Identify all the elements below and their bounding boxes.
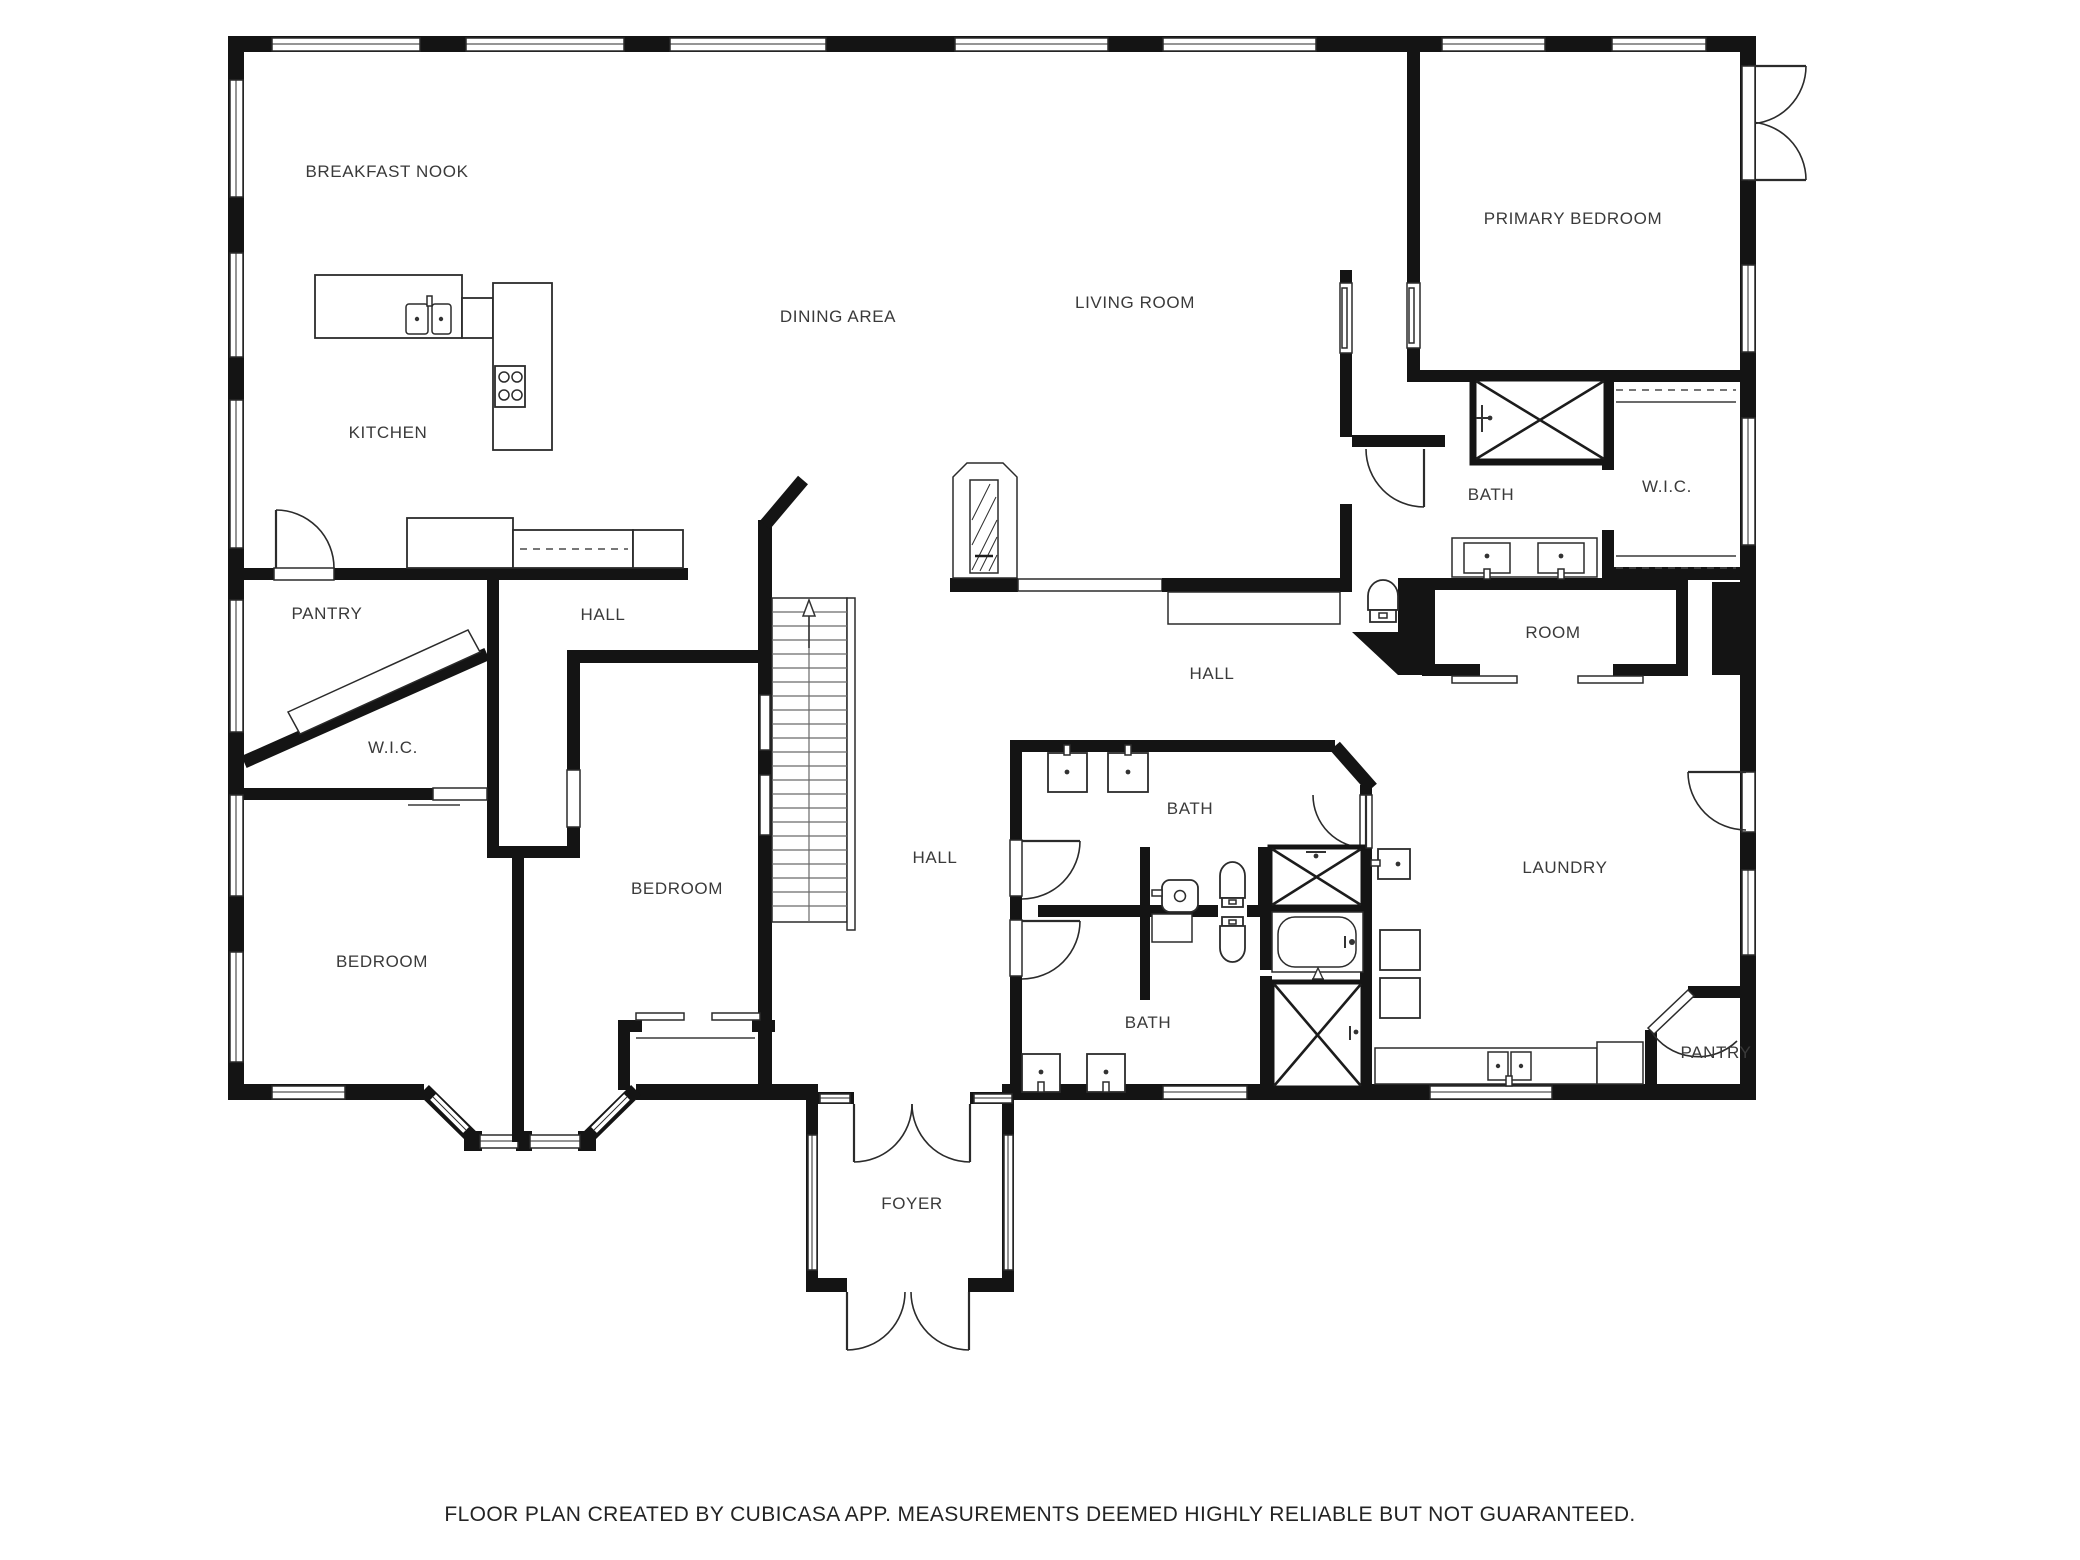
toilet-primary-icon (1368, 580, 1398, 622)
pass-through-counter (1018, 579, 1162, 591)
dryer-icon (1380, 978, 1420, 1018)
label-hall-left: HALL (581, 605, 626, 624)
floor-plan-canvas: BREAKFAST NOOK KITCHEN DINING AREA LIVIN… (0, 0, 2080, 1560)
pantry-shelf (288, 630, 480, 734)
hall-counter (1168, 592, 1340, 624)
label-pantry-left: PANTRY (292, 604, 363, 623)
bay-window (433, 1097, 627, 1148)
floor-plan-page: BREAKFAST NOOK KITCHEN DINING AREA LIVIN… (0, 0, 2080, 1560)
label-bath-top: BATH (1167, 799, 1213, 818)
label-laundry: LAUNDRY (1522, 858, 1607, 877)
cased-opening-panel (1409, 288, 1414, 343)
kitchen-fixtures (288, 275, 683, 734)
window-left-6 (230, 952, 243, 1062)
bath-top-hall-door (1313, 795, 1366, 848)
bath-bottom-left-door (1022, 921, 1080, 979)
pantry-diagonal-wall (244, 654, 487, 762)
bathtub-icon (1272, 912, 1363, 979)
bedroom-divider-wall (512, 846, 524, 1142)
room-slider-panel (1578, 676, 1643, 683)
stove-icon (495, 366, 525, 407)
window-right-3 (1742, 870, 1755, 955)
window-bottom-laundry (1430, 1086, 1552, 1099)
label-bedroom-left: BEDROOM (336, 952, 428, 971)
laundry-wall-sink-icon (1371, 849, 1410, 879)
window-foyer-top-left (820, 1094, 850, 1103)
window-foyer-left (808, 1135, 817, 1270)
label-hall-right: HALL (1190, 664, 1235, 683)
label-bath-bottom: BATH (1125, 1013, 1171, 1032)
window-top-1 (272, 38, 420, 51)
label-living-room: LIVING ROOM (1075, 293, 1195, 312)
primary-bath-door (1366, 449, 1424, 507)
foyer-entry-doors (847, 1292, 969, 1350)
label-hall-center: HALL (913, 848, 958, 867)
vanity-sinks-top-bath (1048, 745, 1148, 792)
footer-disclaimer: FLOOR PLAN CREATED BY CUBICASA APP. MEAS… (444, 1503, 1635, 1526)
label-room: ROOM (1525, 623, 1580, 642)
window-foyer-right (1004, 1135, 1013, 1270)
label-dining-area: DINING AREA (780, 307, 896, 326)
closet-slider-panel (636, 1013, 684, 1020)
label-wic-left: W.I.C. (368, 738, 418, 757)
toilet-bottom-bath-icon (1220, 917, 1245, 962)
doors (276, 66, 1806, 1350)
wall-niche (760, 695, 770, 750)
bath-top-left-door (1022, 841, 1080, 899)
window-top-2 (466, 38, 624, 51)
window-left-1 (230, 80, 243, 197)
window-top-4 (955, 38, 1108, 51)
chimney-mass (1712, 582, 1740, 675)
kitchen-counters (407, 518, 683, 568)
window-bedroom-left-bottom (272, 1086, 345, 1099)
center-bath-fixtures (1022, 745, 1363, 1092)
window-foyer-top-right (974, 1094, 1012, 1103)
label-primary-bedroom: PRIMARY BEDROOM (1484, 209, 1662, 228)
closet-slider-panel (712, 1013, 760, 1020)
window-left-3 (230, 400, 243, 548)
label-pantry-right: PANTRY (1681, 1043, 1752, 1062)
window-top-7 (1612, 38, 1706, 51)
shower-primary-icon (1473, 378, 1607, 462)
bath-bottom-left-door-opening (1010, 920, 1022, 976)
toilet-top-bath-icon (1220, 862, 1245, 907)
window-left-5 (230, 795, 243, 896)
french-doors-primary (1742, 66, 1806, 180)
label-primary-wic: W.I.C. (1642, 477, 1692, 496)
staircase (760, 598, 855, 930)
window-top-3 (670, 38, 826, 51)
window-left-4 (230, 600, 243, 732)
washer-icon (1380, 930, 1420, 970)
label-primary-bath: BATH (1468, 485, 1514, 504)
label-bedroom-center: BEDROOM (631, 879, 723, 898)
foyer-inner-doors (854, 1104, 970, 1162)
bath-top-left-door-opening (1010, 840, 1022, 896)
window-bottom-bath (1163, 1086, 1247, 1099)
bedroom-center-door-opening (567, 770, 580, 827)
laundry-entry-door (1688, 772, 1755, 832)
shower-hall-bottom-icon (1272, 982, 1363, 1088)
label-foyer: FOYER (881, 1194, 943, 1213)
laundry-fixtures (1371, 849, 1643, 1086)
window-top-6 (1442, 38, 1545, 51)
laundry-counter (1375, 1042, 1643, 1086)
window-right-1 (1742, 265, 1755, 352)
kitchen-door-opening (274, 568, 334, 580)
primary-vanity (1452, 538, 1597, 579)
window-left-2 (230, 253, 243, 357)
window-right-2 (1742, 418, 1755, 545)
cased-opening-panel (1342, 288, 1347, 348)
shower-hall-top-icon (1270, 847, 1363, 907)
label-kitchen: KITCHEN (349, 423, 428, 442)
room-slider-panel (1452, 676, 1517, 683)
wall-niche (760, 775, 770, 835)
kitchen-pantry-door (276, 510, 334, 568)
fireplace (953, 463, 1017, 578)
window-top-5 (1163, 38, 1316, 51)
wic-left-opening (433, 788, 487, 800)
label-breakfast-nook: BREAKFAST NOOK (305, 162, 468, 181)
